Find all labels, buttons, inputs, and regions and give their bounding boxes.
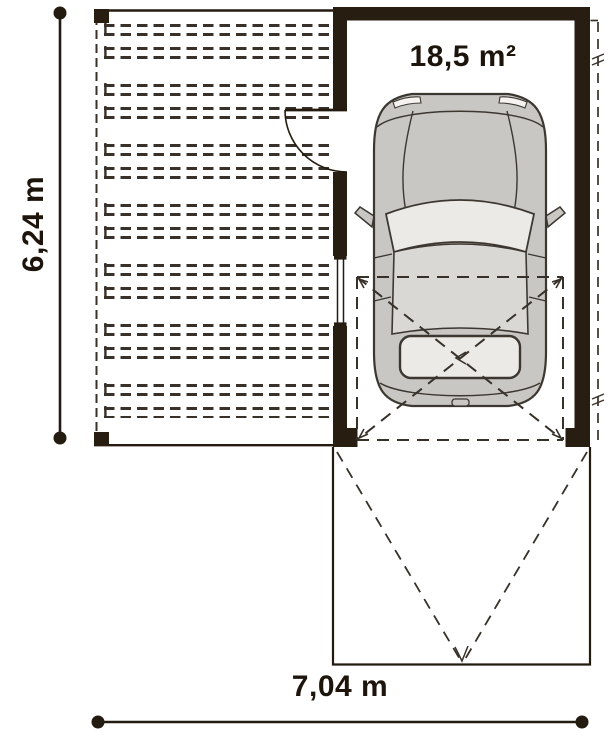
- gate-swing-left: [337, 452, 461, 661]
- pergola-area: [94, 9, 333, 446]
- depth-dimension-dot-top: [54, 7, 67, 20]
- pergola-roof-slats-hatch: [104, 24, 333, 418]
- dimension-width: [92, 716, 589, 729]
- roof-overhang-line: [591, 21, 605, 447]
- garage-wall-left-middle: [333, 172, 347, 256]
- width-dimension-dot-left: [92, 716, 105, 729]
- driveway-outline: [333, 447, 590, 665]
- gate-swing-right: [464, 452, 587, 661]
- garage-wall-right: [575, 7, 591, 447]
- floor-plan-drawing: [0, 0, 610, 736]
- pergola-post-bottom-left: [94, 432, 109, 446]
- total-depth-dimension-label: 6,24 m: [19, 154, 55, 294]
- garage-window: [332, 256, 348, 326]
- pergola-post-top-left: [94, 9, 109, 23]
- garage-door-pier-right: [566, 428, 591, 447]
- car-rear-detail: [452, 399, 469, 406]
- garage-wall-left-lower: [333, 326, 347, 428]
- car-rear-window: [400, 336, 520, 378]
- garage-area-label: 18,5 m²: [385, 42, 541, 72]
- garage-wall-top: [333, 7, 590, 21]
- window-cap-bottom: [334, 322, 347, 326]
- garage-wall-left-upper: [333, 7, 347, 110]
- window-opening: [332, 256, 348, 326]
- driveway: [333, 447, 590, 665]
- garage-door-pier-left: [333, 428, 358, 447]
- floor-plan-canvas: 18,5 m² 7,04 m 6,24 m: [0, 0, 610, 736]
- car-mirror-left: [355, 207, 374, 227]
- width-dimension-dot-right: [576, 716, 589, 729]
- car-mirror-right: [546, 207, 565, 227]
- dimension-depth: [54, 7, 67, 445]
- depth-dimension-dot-bottom: [54, 432, 67, 445]
- window-cap-top: [334, 256, 347, 260]
- total-width-dimension-label: 7,04 m: [257, 672, 423, 702]
